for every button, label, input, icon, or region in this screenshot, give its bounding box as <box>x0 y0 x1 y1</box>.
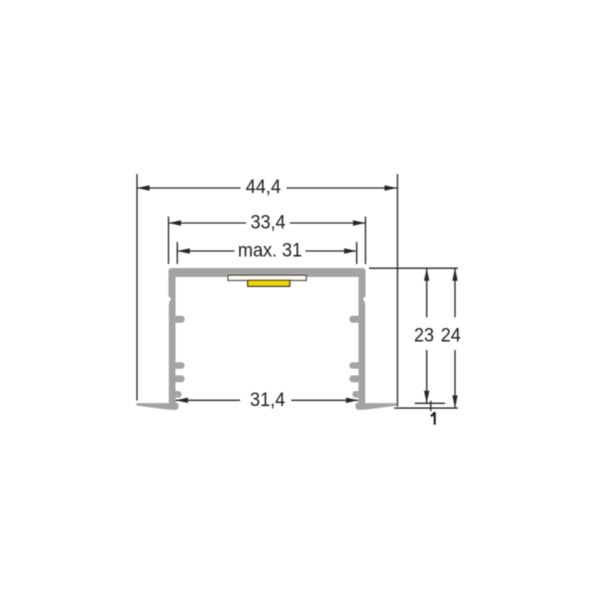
svg-text:24: 24 <box>441 324 461 346</box>
svg-text:44,4: 44,4 <box>246 176 281 198</box>
svg-text:23: 23 <box>414 324 434 346</box>
svg-text:33,4: 33,4 <box>250 211 285 233</box>
svg-text:max. 31: max. 31 <box>238 239 302 261</box>
svg-text:31,4: 31,4 <box>250 388 285 410</box>
